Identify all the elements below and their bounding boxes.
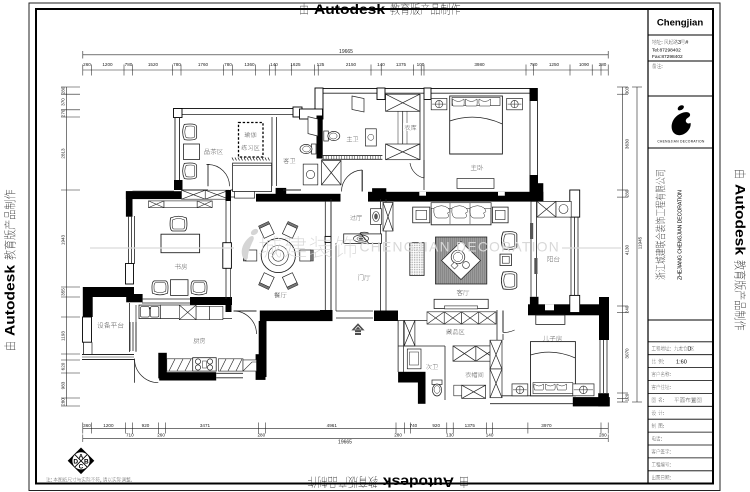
svg-text:1193: 1193 [61, 331, 66, 341]
svg-text:140: 140 [486, 433, 494, 438]
svg-text:11945: 11945 [638, 236, 643, 249]
svg-text:260: 260 [83, 62, 91, 67]
svg-text:1760: 1760 [198, 62, 209, 67]
svg-text:140: 140 [377, 62, 385, 67]
svg-text:780: 780 [125, 62, 133, 67]
svg-text:C: C [79, 464, 84, 471]
svg-text:780: 780 [530, 62, 538, 67]
svg-text:B: B [84, 458, 89, 465]
svg-text:CHENGJIAN DECORATION: CHENGJIAN DECORATION [360, 240, 561, 255]
svg-text:100: 100 [417, 62, 425, 67]
svg-text:370: 370 [61, 98, 66, 106]
svg-text:Autodesk: Autodesk [382, 475, 454, 490]
svg-text:360: 360 [83, 423, 91, 428]
svg-text:280: 280 [61, 86, 66, 94]
svg-text:620: 620 [61, 362, 66, 370]
svg-text:19665: 19665 [338, 440, 352, 446]
svg-text:1200: 1200 [102, 62, 113, 67]
svg-text:130: 130 [446, 433, 454, 438]
svg-text:1943: 1943 [61, 234, 66, 245]
svg-text:Chengjian: Chengjian [657, 18, 704, 29]
svg-text:270: 270 [61, 109, 66, 117]
svg-text:280: 280 [625, 189, 630, 197]
svg-text:260: 260 [157, 433, 165, 438]
svg-text:1090: 1090 [579, 62, 590, 67]
svg-text:4130: 4130 [625, 244, 630, 255]
svg-text:1:60: 1:60 [676, 359, 687, 365]
svg-text:920: 920 [432, 423, 440, 428]
svg-text:1200: 1200 [103, 423, 114, 428]
svg-text:3970: 3970 [541, 423, 552, 428]
svg-text:1250: 1250 [549, 62, 560, 67]
svg-text:,: , [100, 478, 101, 484]
svg-text:120: 120 [625, 393, 630, 401]
svg-text:920: 920 [142, 423, 150, 428]
svg-text:D: D [687, 346, 691, 352]
svg-text:19665: 19665 [339, 49, 353, 55]
svg-text:CHENGJIAN DECORATION: CHENGJIAN DECORATION [657, 140, 705, 144]
svg-text:3471: 3471 [200, 423, 211, 428]
svg-text:.: . [131, 478, 132, 484]
svg-text:710: 710 [126, 433, 134, 438]
svg-text:1375: 1375 [396, 62, 407, 67]
svg-text::: : [51, 478, 52, 484]
svg-text:D: D [73, 458, 78, 465]
svg-text:780: 780 [173, 62, 181, 67]
svg-text:140: 140 [270, 62, 278, 67]
svg-text:280: 280 [394, 433, 402, 438]
svg-text:2150: 2150 [346, 62, 357, 67]
svg-text:780: 780 [224, 62, 232, 67]
svg-text:983: 983 [61, 381, 66, 389]
svg-text:ZHEJIANG CHENGJIAN DECORATION: ZHEJIANG CHENGJIAN DECORATION [678, 190, 684, 280]
svg-text:125: 125 [317, 62, 325, 67]
svg-text:1360: 1360 [244, 62, 255, 67]
svg-text:280: 280 [257, 433, 265, 438]
svg-text:3070: 3070 [625, 348, 630, 359]
svg-text:1625: 1625 [290, 62, 301, 67]
svg-text:280: 280 [61, 398, 66, 406]
svg-text:3980: 3980 [474, 62, 485, 67]
svg-text:2813: 2813 [61, 148, 66, 159]
svg-text:1375: 1375 [465, 423, 476, 428]
svg-text:Autodesk: Autodesk [314, 2, 386, 17]
svg-text:Autodesk: Autodesk [3, 264, 18, 336]
svg-text:3630: 3630 [625, 138, 630, 149]
svg-text:740: 740 [410, 423, 418, 428]
svg-text:Fax:87298402: Fax:87298402 [652, 54, 683, 60]
svg-text:280: 280 [599, 62, 607, 67]
svg-text:240: 240 [625, 305, 630, 313]
svg-text:3: 3 [678, 40, 681, 46]
svg-text:4961: 4961 [327, 423, 338, 428]
svg-text:Tel:87298402: Tel:87298402 [652, 48, 681, 54]
svg-text:355: 355 [61, 288, 66, 296]
svg-text:280: 280 [599, 433, 607, 438]
svg-text:1520: 1520 [148, 62, 159, 67]
svg-text:A: A [79, 453, 84, 460]
svg-text:Autodesk: Autodesk [733, 184, 748, 256]
svg-text:303: 303 [625, 86, 630, 94]
